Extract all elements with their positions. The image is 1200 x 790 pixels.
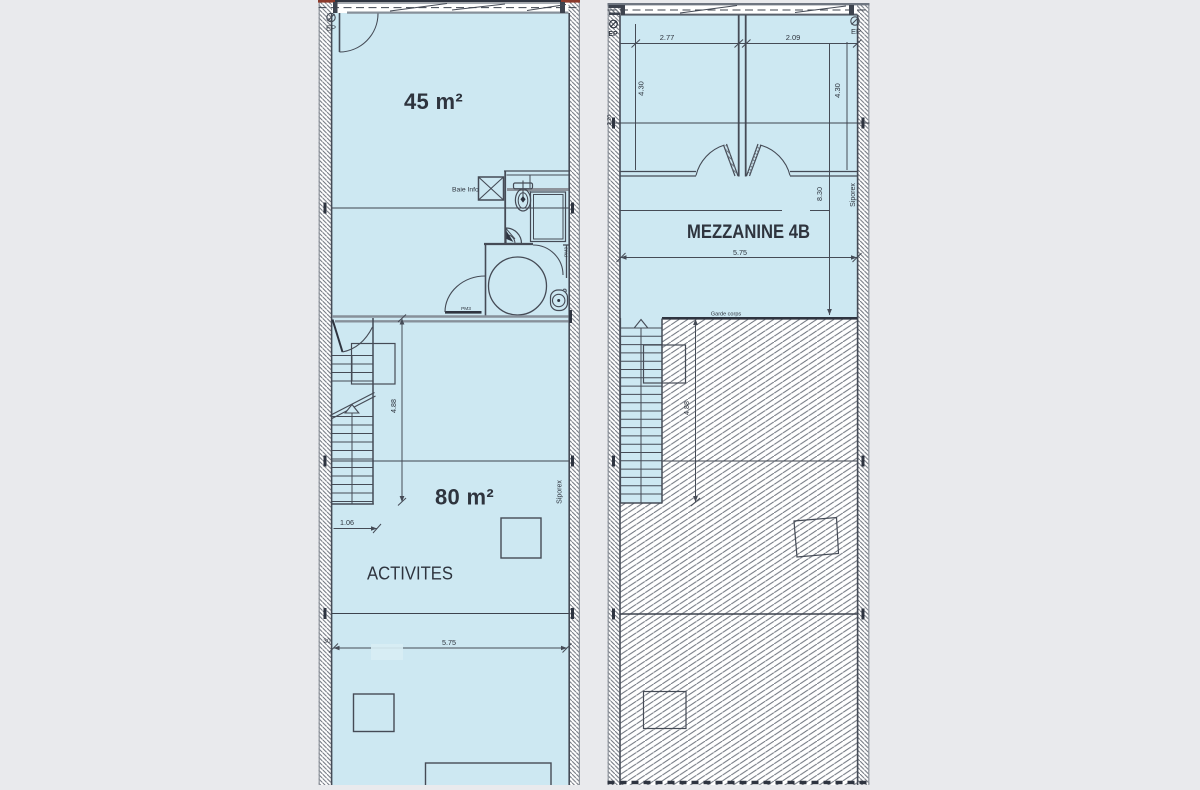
- svg-text:EP: EP: [608, 31, 618, 38]
- svg-text:80 m²: 80 m²: [435, 485, 494, 510]
- svg-text:Baie Info: Baie Info: [452, 187, 479, 194]
- svg-text:4.30: 4.30: [637, 81, 646, 96]
- svg-text:4.88: 4.88: [682, 401, 691, 415]
- svg-text:ACTIVITES: ACTIVITES: [367, 564, 453, 584]
- svg-text:PM3: PM3: [461, 306, 471, 312]
- svg-text:5.75: 5.75: [733, 248, 747, 257]
- svg-text:1.06: 1.06: [340, 518, 354, 527]
- svg-text:8.30: 8.30: [815, 187, 824, 201]
- svg-text:5.75: 5.75: [442, 638, 456, 647]
- svg-text:EP: EP: [851, 27, 861, 36]
- svg-text:Siporex: Siporex: [850, 183, 857, 207]
- svg-text:45 m²: 45 m²: [404, 89, 463, 114]
- svg-text:4.30: 4.30: [833, 83, 842, 98]
- svg-text:PM3: PM3: [564, 247, 570, 257]
- svg-text:EP: EP: [326, 24, 336, 33]
- svg-text:2.20: 2.20: [607, 115, 613, 126]
- svg-text:2.09: 2.09: [786, 33, 801, 42]
- svg-text:Garde corps: Garde corps: [711, 312, 742, 318]
- svg-text:4.88: 4.88: [389, 399, 398, 413]
- svg-text:2.77: 2.77: [660, 33, 675, 42]
- svg-text:30: 30: [323, 638, 331, 645]
- svg-text:Siporex: Siporex: [557, 480, 564, 504]
- svg-text:MEZZANINE 4B: MEZZANINE 4B: [687, 221, 810, 243]
